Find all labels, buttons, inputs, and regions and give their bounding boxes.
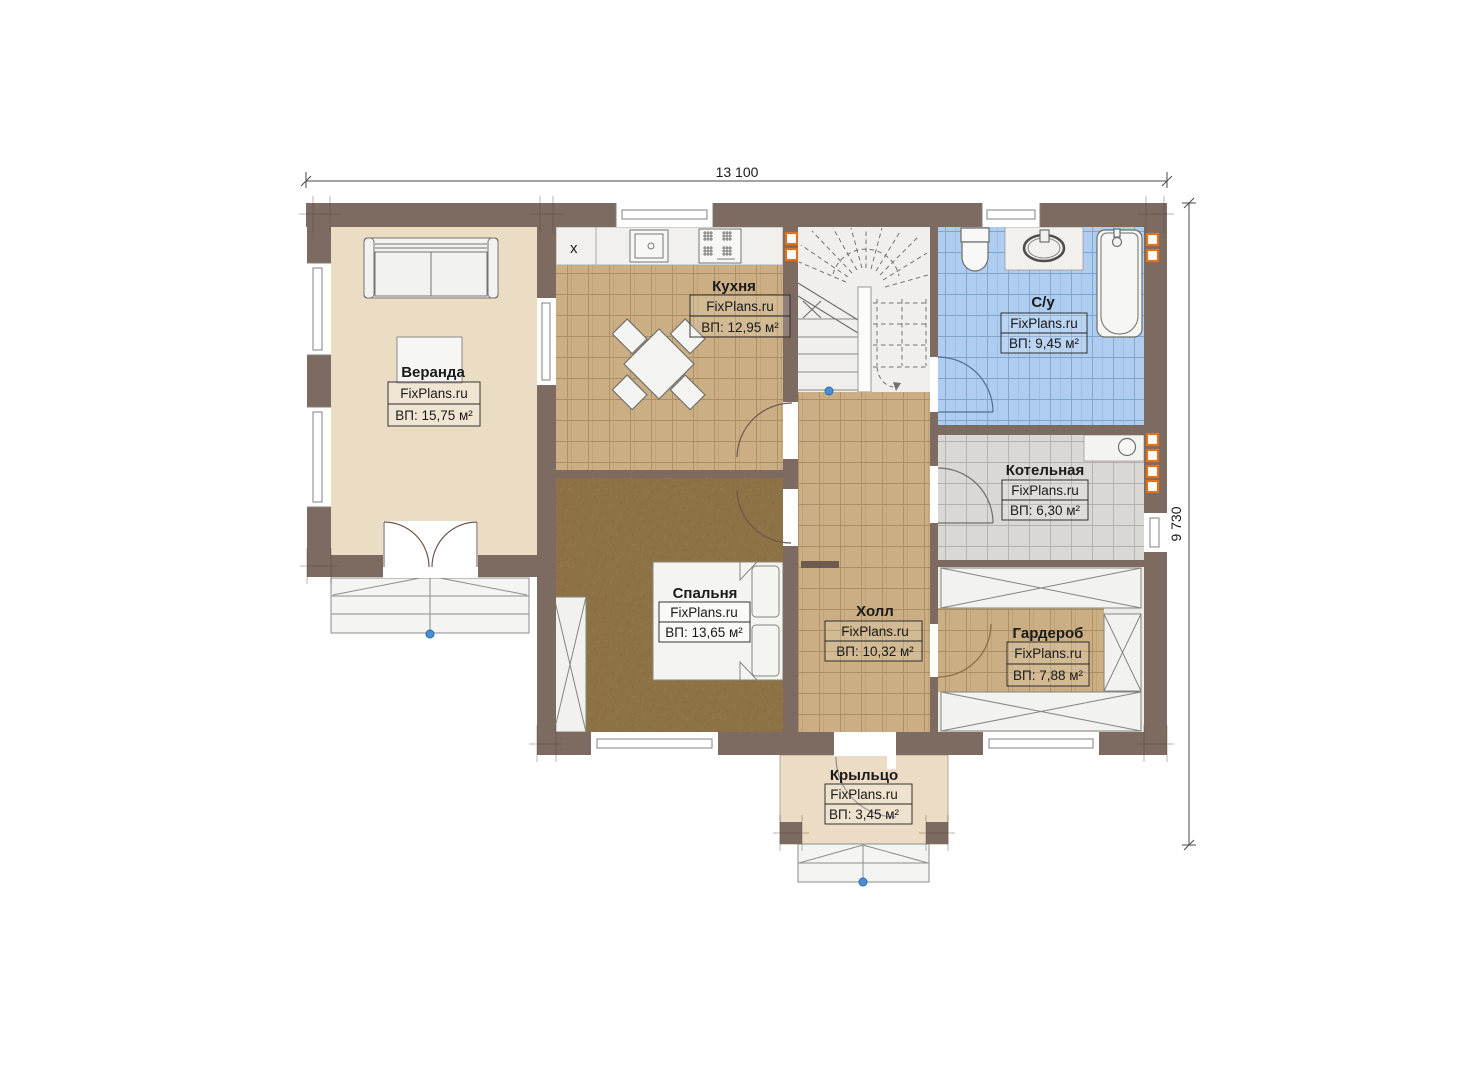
svg-text:ВП: 12,95 м²: ВП: 12,95 м² bbox=[701, 320, 779, 335]
svg-text:Холл: Холл bbox=[856, 603, 894, 620]
svg-text:ВП: 6,30 м²: ВП: 6,30 м² bbox=[1010, 503, 1081, 518]
svg-text:Веранда: Веранда bbox=[401, 364, 465, 381]
svg-text:FixPlans.ru: FixPlans.ru bbox=[706, 299, 774, 314]
svg-text:FixPlans.ru: FixPlans.ru bbox=[1010, 316, 1078, 331]
svg-text:x: x bbox=[570, 240, 578, 257]
svg-text:ВП: 15,75 м²: ВП: 15,75 м² bbox=[395, 408, 473, 423]
svg-text:9 730: 9 730 bbox=[1168, 506, 1184, 541]
svg-text:13 100: 13 100 bbox=[716, 164, 759, 180]
svg-text:ВП: 13,65 м²: ВП: 13,65 м² bbox=[665, 625, 743, 640]
svg-text:FixPlans.ru: FixPlans.ru bbox=[1014, 646, 1082, 661]
svg-text:Гардероб: Гардероб bbox=[1013, 625, 1084, 642]
svg-text:Спальня: Спальня bbox=[673, 585, 738, 602]
svg-text:Котельная: Котельная bbox=[1006, 462, 1085, 479]
svg-text:FixPlans.ru: FixPlans.ru bbox=[841, 624, 909, 639]
svg-text:Кухня: Кухня bbox=[712, 278, 756, 295]
svg-text:FixPlans.ru: FixPlans.ru bbox=[400, 386, 468, 401]
svg-text:FixPlans.ru: FixPlans.ru bbox=[1011, 483, 1079, 498]
svg-text:ВП: 3,45 м²: ВП: 3,45 м² bbox=[829, 807, 900, 822]
svg-text:С/у: С/у bbox=[1031, 294, 1055, 311]
svg-text:FixPlans.ru: FixPlans.ru bbox=[670, 605, 738, 620]
svg-text:FixPlans.ru: FixPlans.ru bbox=[830, 787, 898, 802]
svg-text:Крыльцо: Крыльцо bbox=[830, 767, 898, 784]
svg-text:ВП: 10,32 м²: ВП: 10,32 м² bbox=[836, 644, 914, 659]
svg-text:ВП: 9,45 м²: ВП: 9,45 м² bbox=[1009, 336, 1080, 351]
svg-text:ВП: 7,88 м²: ВП: 7,88 м² bbox=[1013, 668, 1084, 683]
